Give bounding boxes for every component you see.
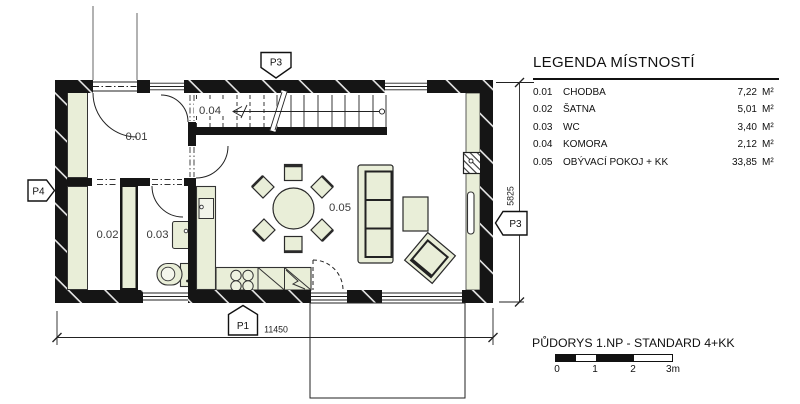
room-number: 0.01 [533, 87, 563, 98]
legend-divider [533, 78, 779, 80]
room-number: 0.03 [533, 122, 563, 133]
chair [311, 176, 333, 198]
room-label-0104: 0.04 [199, 105, 221, 117]
canopy-lines [93, 6, 137, 80]
living-room-furniture [358, 165, 474, 283]
chair [285, 237, 303, 253]
room-area: 7,22 [711, 87, 757, 98]
room-area-unit: M² [757, 104, 779, 115]
scale-bar-labels: 0 1 2 3m [532, 364, 782, 378]
room-label-0105: 0.05 [329, 202, 351, 214]
faucet-icon [200, 205, 204, 209]
stair-break [273, 91, 285, 131]
scale-tick-label: 3m [666, 364, 680, 375]
room-area-unit: M² [757, 87, 779, 98]
radiator [468, 192, 475, 234]
stair-walk-line [233, 105, 385, 118]
chair [311, 219, 333, 241]
legend-row: 0.05 OBÝVACÍ POKOJ + KK 33,85 M² [533, 154, 779, 172]
room-area: 2,12 [711, 139, 757, 150]
room-label-0102: 0.02 [97, 229, 119, 241]
legend-row: 0.04 KOMORA 2,12 M² [533, 136, 779, 154]
room-label-0101: 0.01 [126, 131, 148, 143]
dimension-height-label: 5825 [506, 186, 516, 206]
room-area-unit: M² [757, 157, 779, 168]
room-name: CHODBA [563, 87, 711, 98]
title-block: PŮDORYS 1.NP - STANDARD 4+KK 0 1 2 3m [532, 336, 782, 378]
legend-title: LEGENDA MÍSTNOSTÍ [533, 54, 779, 71]
terrace-door-arc [313, 260, 343, 290]
terrace-outline [310, 303, 465, 398]
room-number: 0.04 [533, 139, 563, 150]
chimney [464, 153, 483, 174]
marker-p4-left-label: P4 [32, 187, 45, 198]
room-area: 33,85 [711, 157, 757, 168]
room-area-unit: M² [757, 139, 779, 150]
legend-panel: LEGENDA MÍSTNOSTÍ 0.01 CHODBA 7,22 M² 0.… [533, 54, 779, 171]
marker-p1-bottom-label: P1 [237, 321, 250, 332]
room-number: 0.02 [533, 104, 563, 115]
armchair [405, 233, 456, 284]
marker-p3-top-label: P3 [270, 58, 283, 69]
living-door-arc [196, 146, 228, 178]
marker-p3-right-label: P3 [509, 219, 522, 230]
room-name: WC [563, 122, 711, 133]
scale-bar [555, 354, 673, 362]
room-area-unit: M² [757, 122, 779, 133]
room-number: 0.05 [533, 157, 563, 168]
scale-tick-label: 1 [592, 364, 598, 375]
scale-tick-label: 0 [554, 364, 560, 375]
washbasin-icon [173, 222, 191, 249]
chair [253, 219, 275, 241]
scale-tick-label: 2 [630, 364, 636, 375]
room-area: 5,01 [711, 104, 757, 115]
room-name: KOMORA [563, 139, 711, 150]
legend-rows: 0.01 CHODBA 7,22 M² 0.02 ŠATNA 5,01 M² 0… [533, 83, 779, 171]
room-name: ŠATNA [563, 104, 711, 115]
legend-row: 0.01 CHODBA 7,22 M² [533, 83, 779, 101]
storage-door-arc [161, 95, 188, 122]
cabinet-column [120, 178, 138, 290]
chair [252, 176, 274, 198]
room-area: 3,40 [711, 122, 757, 133]
legend-row: 0.02 ŠATNA 5,01 M² [533, 101, 779, 119]
dining-set [252, 165, 333, 253]
floor-plan-sheet: 11450 5825 0.01 0.02 0.03 0.04 0.05 P3 P… [0, 0, 800, 404]
wc-door-arc [152, 186, 183, 217]
drawing-title: PŮDORYS 1.NP - STANDARD 4+KK [532, 336, 782, 350]
legend-row: 0.03 WC 3,40 M² [533, 119, 779, 137]
room-name: OBÝVACÍ POKOJ + KK [563, 157, 711, 168]
room-label-0103: 0.03 [147, 229, 169, 241]
dimension-width-label: 11450 [264, 325, 288, 335]
coffee-table [403, 197, 428, 231]
dining-table [273, 188, 314, 229]
